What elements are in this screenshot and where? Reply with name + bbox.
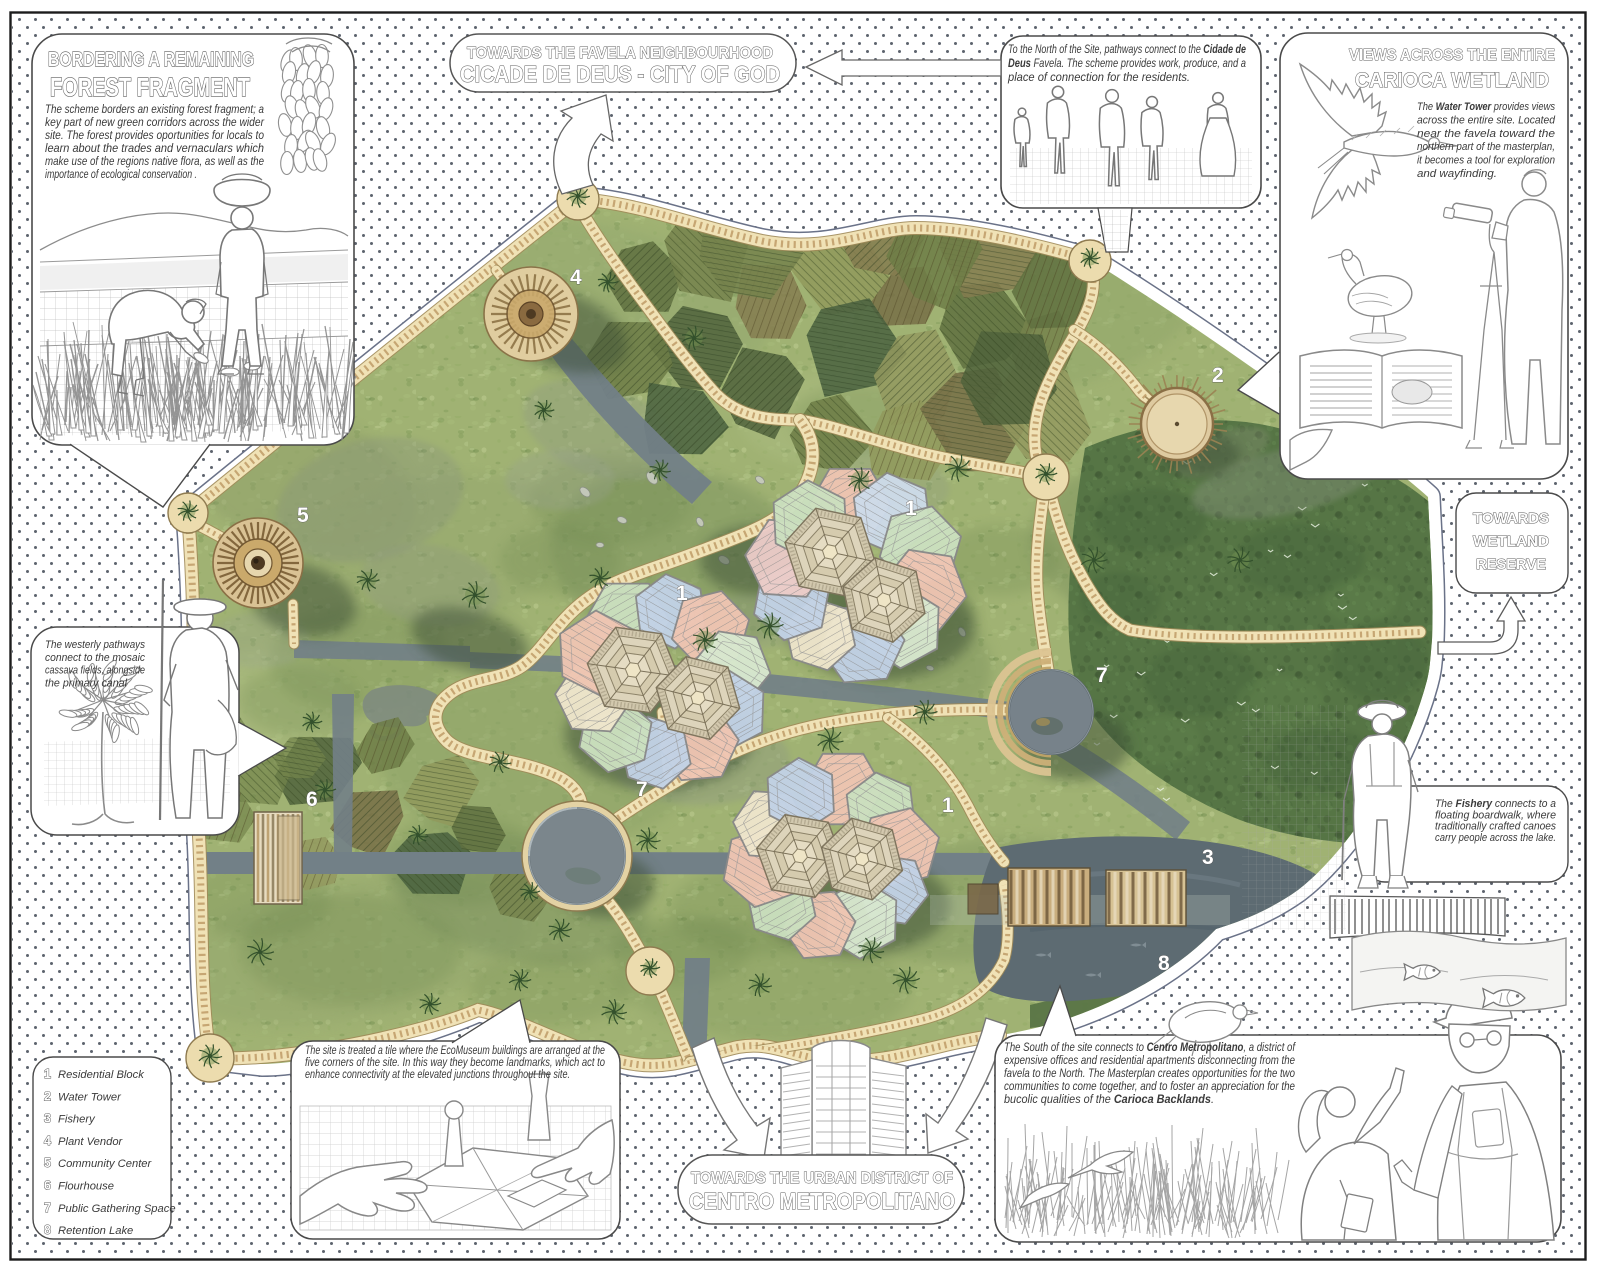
svg-text:The Water Tower provides views: The Water Tower provides views xyxy=(1417,101,1555,113)
svg-text:7: 7 xyxy=(1096,664,1108,687)
svg-text:northern part of the masterpla: northern part of the masterplan, xyxy=(1417,141,1555,153)
svg-text:6: 6 xyxy=(44,1179,51,1193)
svg-text:The Fishery connects to a: The Fishery connects to a xyxy=(1435,798,1556,810)
svg-text:The scheme borders an existing: The scheme borders an existing forest fr… xyxy=(45,103,264,116)
svg-text:Flourhouse: Flourhouse xyxy=(58,1181,114,1193)
svg-text:2: 2 xyxy=(44,1089,51,1103)
svg-text:TOWARDS: TOWARDS xyxy=(1473,510,1549,527)
svg-text:Public Gathering Space: Public Gathering Space xyxy=(58,1203,176,1215)
svg-text:traditionally crafted canoes: traditionally crafted canoes xyxy=(1435,821,1557,833)
svg-text:VIEWS ACROSS THE ENTIRE: VIEWS ACROSS THE ENTIRE xyxy=(1349,47,1555,64)
svg-text:communities to come together,: communities to come together, and to fos… xyxy=(1004,1079,1295,1093)
svg-text:FOREST FRAGMENT: FOREST FRAGMENT xyxy=(50,72,250,102)
svg-text:carry people across the lake.: carry people across the lake. xyxy=(1435,832,1556,844)
svg-text:enhance connectivity at the el: enhance connectivity at the elevated jun… xyxy=(305,1069,570,1081)
svg-text:8: 8 xyxy=(1158,952,1170,975)
svg-text:WETLAND: WETLAND xyxy=(1473,533,1549,550)
svg-text:4: 4 xyxy=(570,266,582,289)
svg-text:Deus Favela. The scheme provid: Deus Favela. The scheme provides work, p… xyxy=(1008,56,1246,70)
svg-text:TOWARDS THE URBAN DISTRICT OF: TOWARDS THE URBAN DISTRICT OF xyxy=(691,1170,953,1187)
svg-text:7: 7 xyxy=(44,1201,51,1215)
svg-text:8: 8 xyxy=(44,1223,51,1237)
svg-text:make use of the regions native: make use of the regions native flora, as… xyxy=(45,155,264,168)
svg-text:five corners of the site. In t: five corners of the site. In this way th… xyxy=(305,1057,605,1069)
svg-text:7: 7 xyxy=(636,778,648,801)
svg-text:connect to the mosaic: connect to the mosaic xyxy=(45,652,145,664)
svg-text:CENTRO METROPOLITANO: CENTRO METROPOLITANO xyxy=(689,1188,955,1214)
svg-text:Residential Block: Residential Block xyxy=(58,1069,145,1081)
svg-text:CICADE DE DEUS - CITY OF GOD: CICADE DE DEUS - CITY OF GOD xyxy=(460,61,780,87)
svg-text:expensive offices and resident: expensive offices and residential apartm… xyxy=(1004,1053,1295,1067)
svg-text:1: 1 xyxy=(44,1067,51,1081)
svg-text:BORDERING A REMAINING: BORDERING A REMAINING xyxy=(48,49,254,71)
svg-text:and wayfinding.: and wayfinding. xyxy=(1417,168,1497,180)
svg-text:across the entire site. Locate: across the entire site. Located xyxy=(1417,114,1556,126)
svg-text:5: 5 xyxy=(297,504,309,527)
svg-text:it becomes a tool for explorat: it becomes a tool for exploration xyxy=(1417,155,1555,167)
svg-text:4: 4 xyxy=(44,1134,51,1148)
svg-text:cassava fields, alongside: cassava fields, alongside xyxy=(45,665,145,677)
svg-text:favela to the North. The Maste: favela to the North. The Masterplan crea… xyxy=(1004,1066,1295,1080)
svg-text:place of connection for the re: place of connection for the residents. xyxy=(1007,70,1190,84)
svg-text:To the North of the Site, path: To the North of the Site, pathways conne… xyxy=(1008,42,1246,56)
svg-text:2: 2 xyxy=(1212,364,1224,387)
svg-text:bucolic qualities of the Cario: bucolic qualities of the Carioca Backlan… xyxy=(1004,1092,1214,1106)
svg-text:near the favela toward the: near the favela toward the xyxy=(1417,128,1555,140)
svg-text:3: 3 xyxy=(1202,846,1214,869)
svg-text:key part of new green corridor: key part of new green corridors across t… xyxy=(45,116,265,129)
svg-text:6: 6 xyxy=(306,788,318,811)
svg-text:Community Center: Community Center xyxy=(58,1158,153,1170)
svg-text:Retention Lake: Retention Lake xyxy=(58,1225,133,1237)
svg-text:RESERVE: RESERVE xyxy=(1476,556,1546,573)
svg-text:1: 1 xyxy=(942,794,954,817)
svg-text:floating boardwalk, where: floating boardwalk, where xyxy=(1435,809,1556,821)
svg-text:The site is treated a tile whe: The site is treated a tile where the Eco… xyxy=(305,1045,605,1057)
svg-text:Fishery: Fishery xyxy=(58,1114,96,1126)
svg-text:CARIOCA WETLAND: CARIOCA WETLAND xyxy=(1355,69,1549,92)
svg-text:TOWARDS THE FAVELA NEIGHBOURHO: TOWARDS THE FAVELA NEIGHBOURHOOD xyxy=(467,45,773,62)
svg-text:learn about the trades and ver: learn about the trades and vernaculars w… xyxy=(45,142,264,155)
svg-text:importance of ecological conse: importance of ecological conservation . xyxy=(45,168,197,181)
svg-text:1: 1 xyxy=(905,497,917,520)
svg-text:1: 1 xyxy=(676,582,688,605)
svg-text:3: 3 xyxy=(44,1112,51,1126)
svg-text:site. The forest provides opor: site. The forest provides oportunities f… xyxy=(45,129,264,142)
svg-text:Water Tower: Water Tower xyxy=(58,1091,122,1103)
svg-text:The westerly pathways: The westerly pathways xyxy=(45,639,145,651)
svg-text:The South of the site connects: The South of the site connects to Centro… xyxy=(1004,1040,1296,1054)
svg-text:5: 5 xyxy=(44,1156,51,1170)
svg-text:the primary canal: the primary canal xyxy=(45,677,128,689)
svg-text:Plant Vendor: Plant Vendor xyxy=(58,1136,124,1148)
